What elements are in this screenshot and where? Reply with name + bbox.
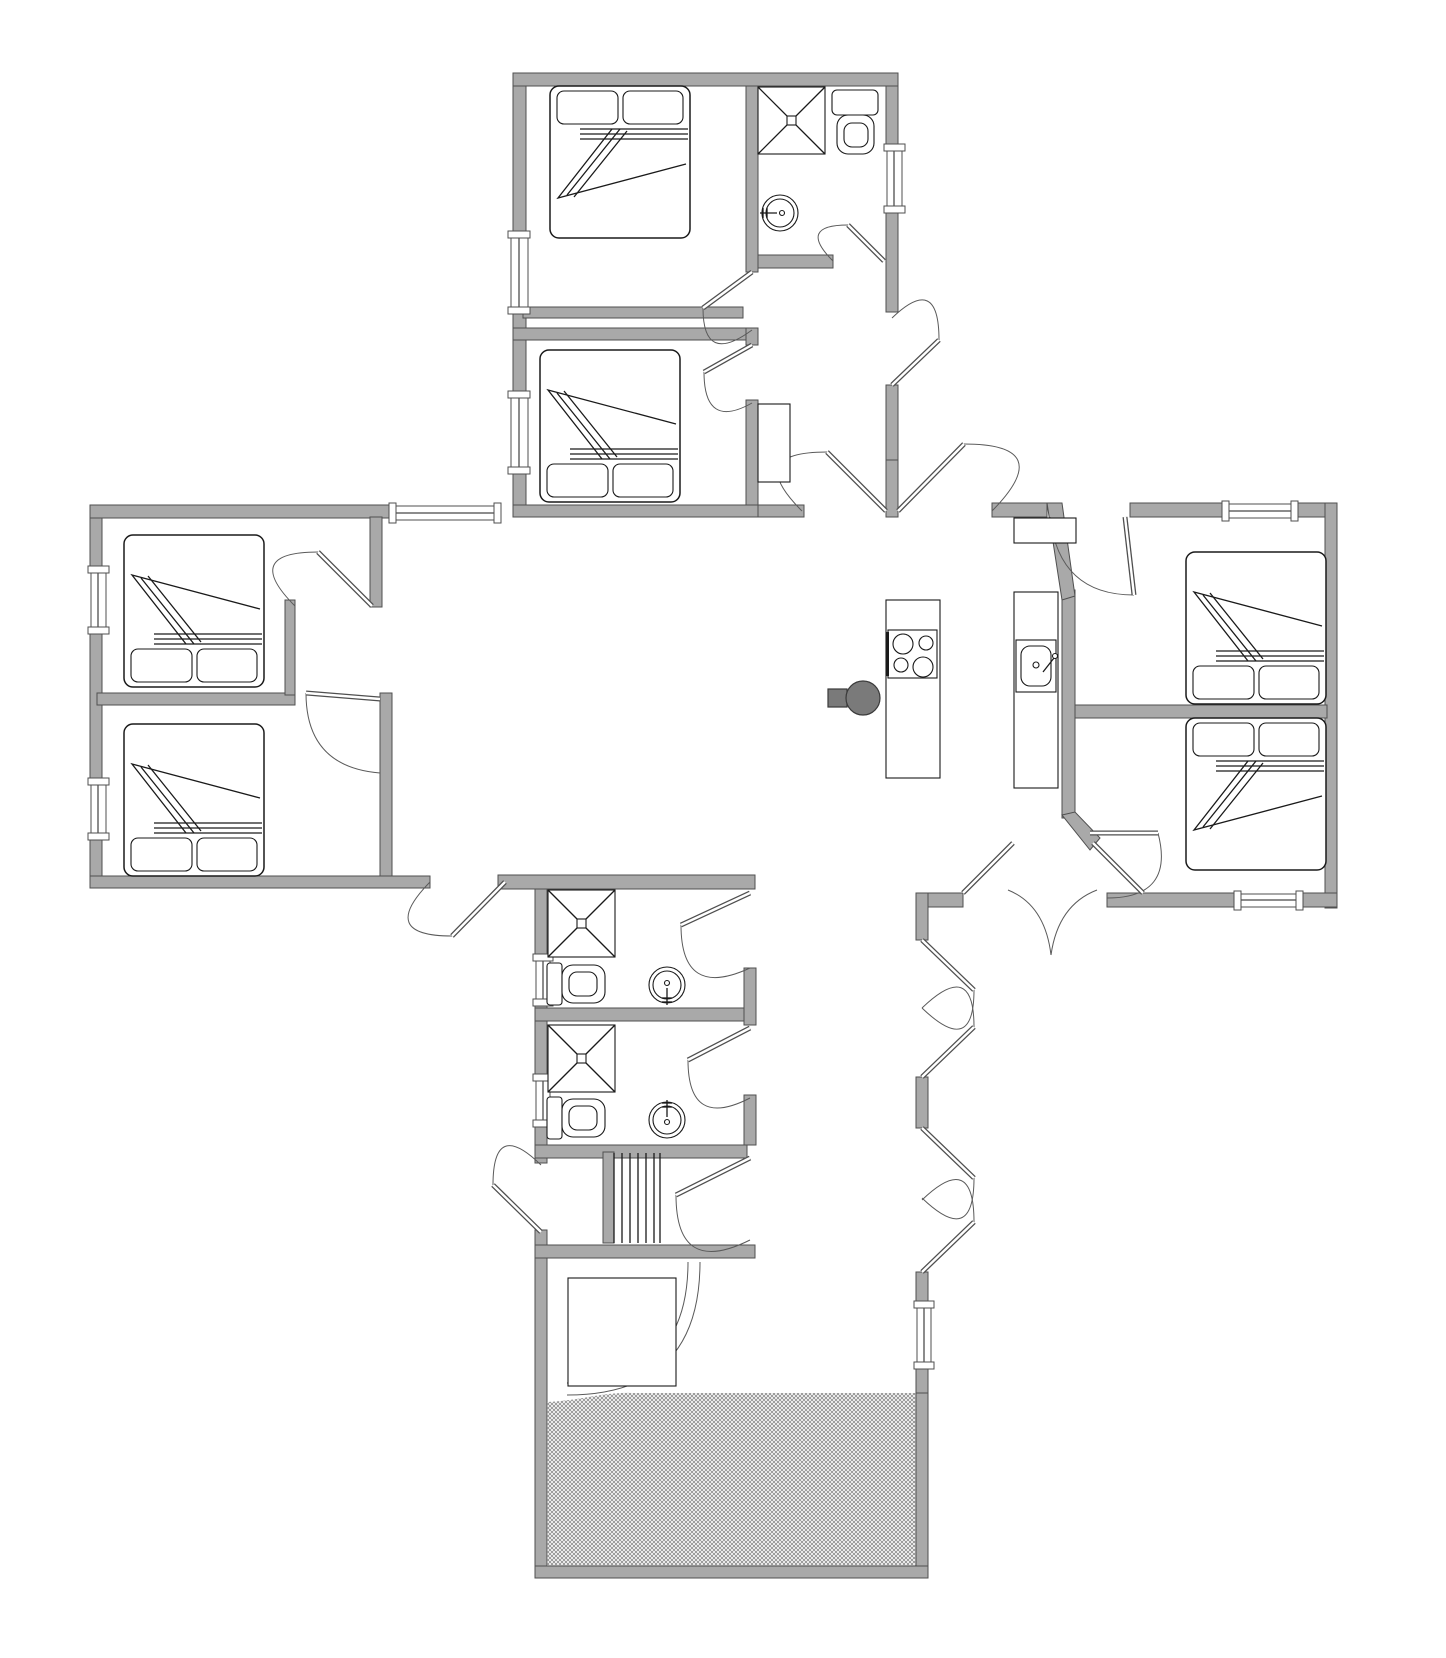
wall-segment	[603, 1152, 614, 1243]
wall-segment	[1300, 893, 1337, 907]
double-bed	[1186, 718, 1326, 870]
wall-segment	[285, 600, 295, 695]
main-entrance-door	[567, 1262, 700, 1395]
shower-icon	[758, 87, 825, 154]
wall-segment	[513, 310, 526, 395]
wall-segment	[370, 517, 382, 607]
toilet-icon	[832, 90, 878, 154]
kitchen	[758, 404, 1076, 788]
hall-closet	[758, 404, 790, 482]
wall-segment	[916, 1077, 928, 1128]
burner	[893, 634, 913, 654]
door-swing	[493, 1146, 541, 1232]
wall-segment	[758, 505, 804, 517]
wall-segment	[97, 693, 295, 705]
wall-segment	[90, 505, 392, 518]
wall-segment	[90, 876, 430, 888]
wall-cabinet	[1014, 518, 1076, 543]
door-swing	[681, 893, 750, 978]
toilet-icon	[547, 963, 605, 1005]
french-door-swing	[922, 940, 974, 1077]
terrace-hatch	[547, 1393, 916, 1566]
wall-segment	[886, 86, 898, 148]
entrance-door-leaf	[568, 1278, 676, 1386]
floor-plan-drawing	[0, 0, 1446, 1658]
door-swing	[688, 1028, 750, 1108]
door-swing	[818, 225, 884, 261]
wall-segment	[513, 505, 758, 517]
wall-segment	[535, 1008, 755, 1021]
wood-stove	[846, 681, 880, 715]
wall-segment	[916, 893, 928, 940]
kitchen-sink-drain	[1033, 662, 1039, 668]
wall-segment	[1075, 705, 1327, 718]
shower-icon	[548, 890, 615, 957]
wall-segment	[916, 1272, 928, 1305]
door-swing	[778, 452, 886, 511]
window	[914, 1301, 934, 1369]
kitchen-island	[886, 600, 940, 778]
wall-segment	[746, 86, 758, 272]
burner	[919, 636, 933, 650]
double-bed	[124, 724, 264, 876]
floor-plan-page	[0, 0, 1446, 1658]
double-bed	[124, 535, 264, 687]
wall-segment	[535, 1230, 547, 1578]
wall-segment	[886, 210, 898, 312]
door-swing	[704, 345, 752, 412]
wall-segment	[1062, 590, 1075, 818]
kitchen-sink-tap-knob	[1053, 654, 1058, 659]
window	[884, 144, 905, 213]
door-swing	[273, 552, 372, 606]
window	[88, 566, 109, 634]
door-swing	[898, 444, 1019, 511]
window	[88, 778, 109, 840]
french-door-swing	[922, 1128, 974, 1272]
wall-segment	[535, 889, 547, 958]
wall-segment	[380, 693, 392, 876]
wall-segment	[498, 875, 755, 889]
stairs	[614, 1153, 660, 1243]
wall-segment	[744, 968, 756, 1025]
toilet-icon	[547, 1097, 605, 1139]
wall-segment	[513, 86, 526, 235]
window	[508, 391, 530, 474]
wall-segment	[535, 1566, 928, 1578]
wall-segment	[513, 73, 898, 86]
double-bed	[540, 350, 680, 502]
wall-segment	[992, 503, 1047, 517]
window	[508, 231, 530, 314]
shower-icon	[548, 1025, 615, 1092]
wall-segment	[513, 328, 758, 340]
double-bed	[1186, 552, 1326, 704]
door-swing	[676, 1158, 750, 1252]
bathroom-fixtures	[547, 87, 878, 1139]
terrace	[547, 1393, 916, 1566]
washbasin-icon	[649, 967, 685, 1005]
double-bed	[550, 86, 690, 238]
wall-segment	[90, 518, 102, 570]
burner	[913, 657, 933, 677]
door-swing	[306, 693, 380, 773]
wall-segment	[744, 1095, 756, 1145]
burner	[894, 658, 908, 672]
washbasin-icon	[760, 195, 798, 231]
door-swing	[408, 882, 505, 936]
wall-segment	[90, 630, 102, 782]
wall-segment	[746, 400, 758, 517]
furniture	[124, 86, 1326, 876]
wall-segment	[916, 1393, 928, 1578]
wall-segment	[758, 255, 833, 268]
washbasin-icon	[649, 1100, 685, 1138]
wood-stove-flue	[828, 689, 847, 707]
window	[1234, 891, 1303, 910]
wall-segment	[535, 1145, 747, 1158]
window	[389, 503, 501, 523]
wall-segment	[1107, 893, 1237, 907]
wall-segment	[535, 1245, 755, 1258]
door-swing	[892, 300, 939, 385]
wall-segment	[886, 460, 898, 517]
wall-segment	[1130, 503, 1225, 517]
door-swing	[1090, 833, 1161, 898]
wall-segment	[523, 307, 743, 318]
window	[1222, 501, 1298, 521]
